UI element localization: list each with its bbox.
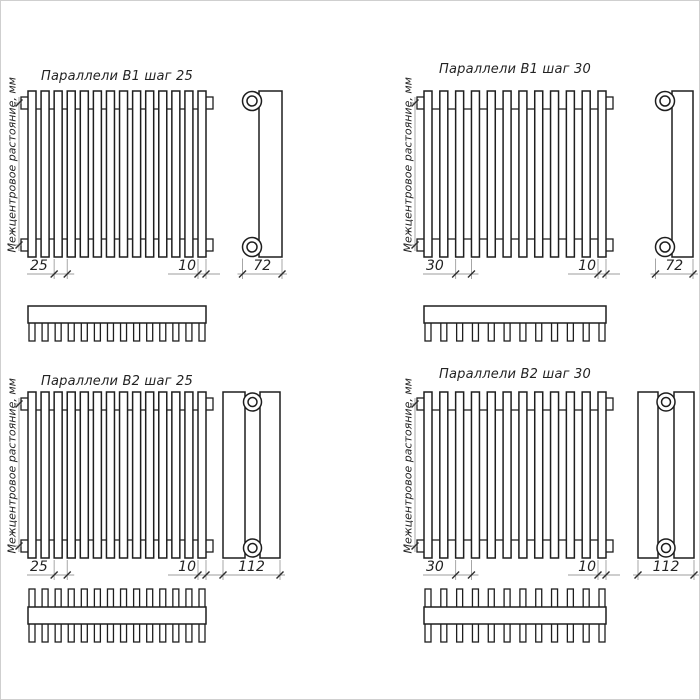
vertical-dim-label: Межцентровое растояние, мм bbox=[403, 394, 414, 554]
diagram-title: Параллели В2 шаг 30 bbox=[439, 368, 591, 381]
depth-dim-label: 112 bbox=[230, 560, 274, 574]
side-view bbox=[656, 91, 694, 257]
depth-dim-label: 72 bbox=[652, 259, 696, 273]
front-view bbox=[417, 91, 613, 257]
plan-view bbox=[28, 306, 206, 341]
tube-width-dim-label: 10 bbox=[166, 259, 196, 273]
side-view bbox=[223, 392, 280, 558]
tube-width-dim-label: 10 bbox=[566, 259, 596, 273]
diagram-title: Параллели В1 шаг 25 bbox=[41, 70, 193, 83]
radiator-drawing-graphics bbox=[1, 1, 700, 700]
pitch-dim-label: 25 bbox=[30, 259, 48, 273]
tube-width-dim-label: 10 bbox=[166, 560, 196, 574]
diagram-title: Параллели В2 шаг 25 bbox=[41, 375, 193, 388]
side-view bbox=[243, 91, 283, 257]
diagram-title: Параллели В1 шаг 30 bbox=[439, 63, 591, 76]
front-view bbox=[21, 91, 213, 257]
front-view bbox=[417, 392, 613, 558]
pitch-dim-label: 30 bbox=[426, 259, 444, 273]
technical-drawing-sheet: Параллели В1 шаг 25 Межцентровое растоян… bbox=[0, 0, 700, 700]
diagram-quadrant-2 bbox=[410, 91, 698, 341]
diagram-quadrant-4 bbox=[410, 392, 699, 642]
plan-view bbox=[424, 306, 606, 341]
pitch-dim-label: 25 bbox=[30, 560, 48, 574]
vertical-dim-label: Межцентровое растояние, мм bbox=[7, 394, 18, 554]
side-view bbox=[638, 392, 694, 558]
depth-dim-label: 112 bbox=[644, 560, 688, 574]
pitch-dim-label: 30 bbox=[426, 560, 444, 574]
depth-dim-label: 72 bbox=[240, 259, 284, 273]
vertical-dim-label: Межцентровое растояние, мм bbox=[7, 93, 18, 253]
plan-view bbox=[28, 589, 206, 642]
vertical-dim-label: Межцентровое растояние, мм bbox=[403, 93, 414, 253]
tube-width-dim-label: 10 bbox=[566, 560, 596, 574]
diagram-quadrant-1 bbox=[14, 91, 287, 341]
front-view bbox=[21, 392, 213, 558]
diagram-quadrant-3 bbox=[14, 392, 285, 642]
plan-view bbox=[424, 589, 606, 642]
